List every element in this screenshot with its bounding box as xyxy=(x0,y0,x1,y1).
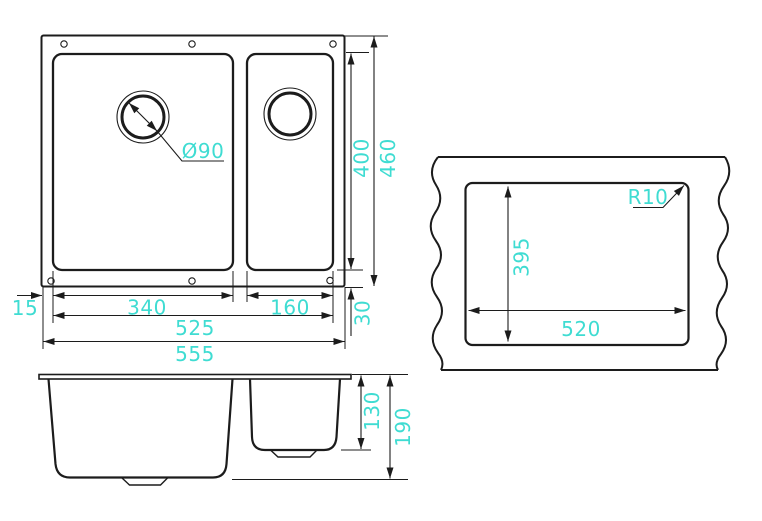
dim-half-bowl-depth: 130 xyxy=(360,391,384,431)
top-view-plan: Ø90 400 460 30 15 340 160 525 555 xyxy=(12,36,400,367)
dim-corner-radius: R10 xyxy=(628,185,669,209)
half-drain-recess-profile xyxy=(271,451,317,458)
mounting-hole xyxy=(189,278,195,284)
dim-drain-diameter: Ø90 xyxy=(182,139,225,163)
dim-overall-height: 460 xyxy=(376,138,400,178)
mounting-hole xyxy=(61,41,67,47)
countertop-break-line-right xyxy=(717,157,730,370)
side-view-section: 130 190 xyxy=(39,375,415,486)
half-drain-inner-circle xyxy=(269,93,311,135)
dim-cutout-width: 520 xyxy=(561,317,601,341)
main-bowl-profile xyxy=(49,379,233,478)
dim-edge-offset: 15 xyxy=(12,296,38,320)
dim-inner-height: 400 xyxy=(350,138,374,178)
mounting-hole xyxy=(189,41,195,47)
half-bowl-outline xyxy=(247,54,333,270)
dim-bottom-offset: 30 xyxy=(351,300,375,326)
countertop-break-line-left xyxy=(431,157,443,370)
sink-rim-profile xyxy=(39,375,351,380)
mounting-hole xyxy=(327,277,333,283)
dim-main-bowl-depth: 190 xyxy=(391,407,415,447)
dim-overall-width: 555 xyxy=(175,342,215,366)
technical-drawing-canvas: Ø90 400 460 30 15 340 160 525 555 xyxy=(0,0,762,521)
half-drain-outer-circle xyxy=(264,88,316,140)
drain-diameter-arrow xyxy=(129,103,157,131)
dim-cutout-height: 395 xyxy=(510,237,534,277)
sink-drawing-svg: Ø90 400 460 30 15 340 160 525 555 xyxy=(0,0,762,521)
main-drain-recess-profile xyxy=(122,478,168,485)
cutout-template-view: 395 520 R10 xyxy=(431,157,730,370)
half-bowl-profile xyxy=(250,379,340,450)
mounting-hole xyxy=(330,41,336,47)
dim-inner-width: 525 xyxy=(175,316,215,340)
